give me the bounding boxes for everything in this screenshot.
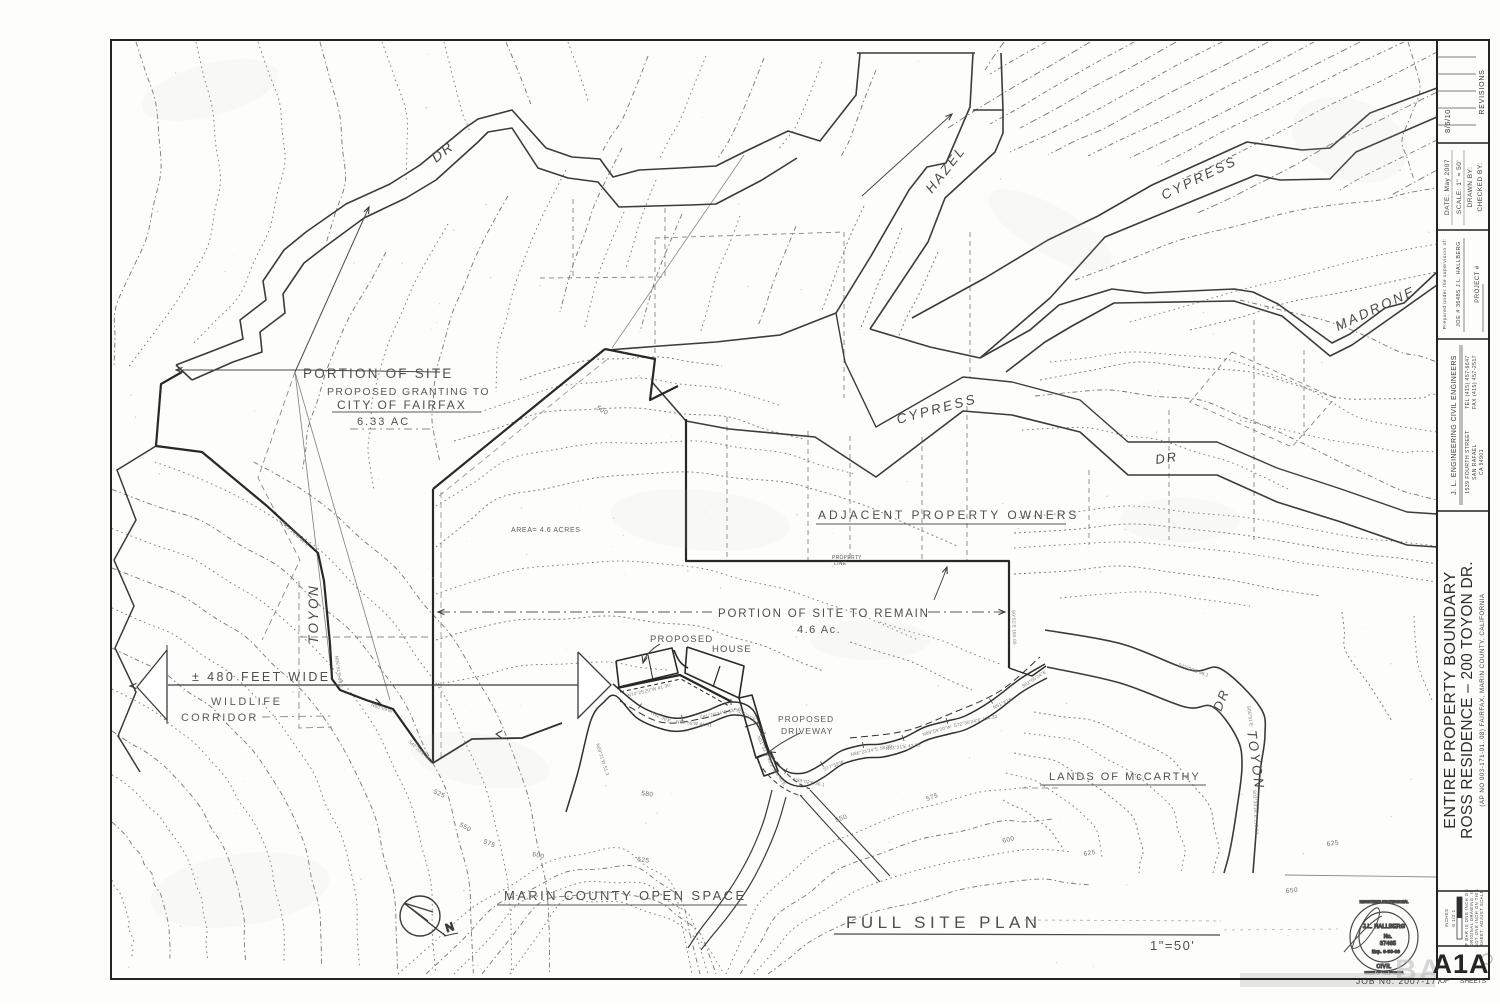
svg-text:CHECKED BY:: CHECKED BY: <box>1477 162 1484 211</box>
svg-text:CA 94901: CA 94901 <box>1479 449 1485 475</box>
svg-text:A1A: A1A <box>1432 949 1489 979</box>
svg-text:SHEETS: SHEETS <box>1460 978 1487 985</box>
svg-text:SAN RAFAEL: SAN RAFAEL <box>1472 444 1478 480</box>
svg-text:± 480 FEET WIDE: ± 480 FEET WIDE <box>192 670 331 684</box>
svg-text:1"=50': 1"=50' <box>1150 938 1195 953</box>
svg-text:PROJECT #: PROJECT # <box>1475 265 1481 303</box>
svg-text:ADJACENT PROPERTY OWNERS: ADJACENT PROPERTY OWNERS <box>818 508 1079 522</box>
svg-text:CITY OF FAIRFAX: CITY OF FAIRFAX <box>337 398 467 412</box>
svg-text:DR: DR <box>1154 449 1179 467</box>
svg-text:LINE: LINE <box>834 561 847 567</box>
svg-text:REVISIONS: REVISIONS <box>1479 69 1486 114</box>
svg-text:SHEET, ADJUST SCALE: SHEET, ADJUST SCALE <box>1479 890 1484 946</box>
svg-text:Prepared under the supervision: Prepared under the supervision of: <box>1442 239 1448 330</box>
svg-text:WILDLIFE: WILDLIFE <box>211 696 283 708</box>
svg-text:8/6/10: 8/6/10 <box>1443 109 1452 133</box>
svg-text:TEL (415) 457-6647: TEL (415) 457-6647 <box>1465 355 1471 409</box>
svg-text:PROPOSED: PROPOSED <box>650 634 713 645</box>
svg-text:SCALE: 1" = 50': SCALE: 1" = 50' <box>1456 160 1463 214</box>
svg-text:LANDS OF McCARTHY: LANDS OF McCARTHY <box>1049 771 1201 783</box>
svg-text:PORTION OF SITE: PORTION OF SITE <box>303 366 454 381</box>
svg-text:MARIN COUNTY OPEN SPACE: MARIN COUNTY OPEN SPACE <box>504 888 747 903</box>
svg-text:ENTIRE PROPERTY BOUNDARY: ENTIRE PROPERTY BOUNDARY <box>1442 571 1459 828</box>
svg-text:HOUSE: HOUSE <box>712 644 752 655</box>
svg-text:INCHES: INCHES <box>1444 909 1449 928</box>
svg-text:37465: 37465 <box>1380 941 1396 947</box>
svg-text:650: 650 <box>1285 887 1298 895</box>
svg-text:PROPOSED: PROPOSED <box>778 714 834 724</box>
svg-text:TOYON: TOYON <box>306 584 321 644</box>
svg-text:CORRIDOR: CORRIDOR <box>181 712 259 724</box>
svg-text:6.33 AC: 6.33 AC <box>357 416 410 428</box>
svg-text:PROPOSED GRANTING TO: PROPOSED GRANTING TO <box>327 386 490 398</box>
svg-text:(AP NO 003-171-01..08) FAIRF: (AP NO 003-171-01..08) FAIRFAX, MARIN CO… <box>1479 593 1486 806</box>
svg-text:REGISTERED PROFESSIONAL: REGISTERED PROFESSIONAL <box>1360 900 1409 904</box>
svg-text:PORTION OF SITE TO REMAIN: PORTION OF SITE TO REMAIN <box>718 608 930 620</box>
svg-text:AREA= 4.6 ACRES: AREA= 4.6 ACRES <box>511 527 581 534</box>
svg-text:CIVIL: CIVIL <box>1376 964 1391 970</box>
svg-text:OF: OF <box>1440 978 1449 985</box>
svg-text:JOE # 36485 J.L. HALLBERG: JOE # 36485 J.L. HALLBERG <box>1456 241 1462 327</box>
svg-text:DRAWN BY:: DRAWN BY: <box>1467 167 1474 208</box>
svg-text:FAX (415) 457-2517: FAX (415) 457-2517 <box>1472 355 1478 409</box>
svg-text:No.: No. <box>1384 934 1392 940</box>
svg-text:JOB No. 2007-177: JOB No. 2007-177 <box>1356 976 1442 986</box>
svg-text:DRIVEWAY: DRIVEWAY <box>781 726 833 736</box>
svg-text:DATE: May 2007: DATE: May 2007 <box>1444 159 1451 215</box>
svg-text:FULL SITE PLAN: FULL SITE PLAN <box>846 913 1042 932</box>
svg-text:J. L. ENGINEERING CIVIL E: J. L. ENGINEERING CIVIL ENGINEERS <box>1451 355 1458 495</box>
svg-text:1539 FOURTH STREET: 1539 FOURTH STREET <box>1465 430 1471 493</box>
svg-text:0 1/2 1: 0 1/2 1 <box>1451 909 1456 926</box>
svg-text:ROSS RESIDENCE – 200 TOYON DR.: ROSS RESIDENCE – 200 TOYON DR. <box>1459 561 1476 839</box>
